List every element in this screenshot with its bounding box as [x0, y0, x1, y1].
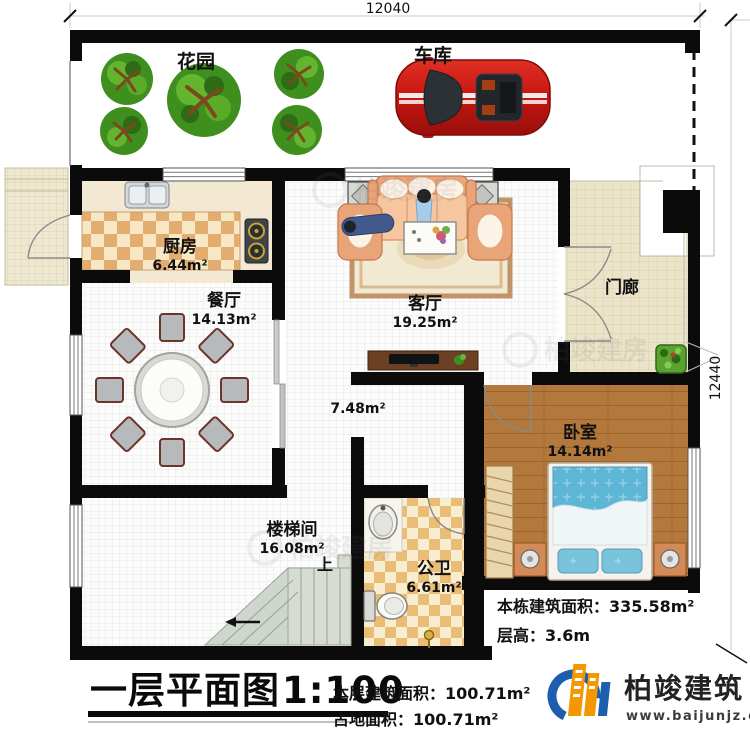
label-stair-up: 上	[317, 555, 333, 574]
window-dining-west	[70, 335, 82, 415]
tree-large	[167, 63, 241, 137]
terrace-floor	[5, 168, 68, 285]
dining-set	[96, 314, 248, 466]
label-kitchen-area: 6.44m²	[152, 258, 207, 274]
label-dining-area: 14.13m²	[191, 312, 256, 328]
porch-plant	[656, 345, 686, 373]
tree	[101, 53, 153, 105]
watermark-text: 柏竣建房	[354, 175, 458, 206]
label-stairwell: 楼梯间	[267, 519, 318, 540]
pillow	[558, 549, 598, 573]
stat-land-area: 占地面积：100.71m²	[333, 710, 498, 729]
label-garage: 车库	[414, 44, 452, 67]
floor-plan-page: 柏竣建房 柏竣建房 柏竣建房 12040 12440 花园 车库 厨房 6.44…	[0, 0, 750, 730]
label-hall-area: 7.48m²	[330, 401, 385, 417]
dimension-top: 12040	[64, 1, 706, 28]
logo-icon	[545, 664, 613, 725]
stat-floor-area: 本层建筑面积：100.71m²	[333, 684, 530, 703]
kitchen-sink	[125, 182, 169, 208]
armchair	[468, 204, 512, 260]
logo-website: www.baijunjz.com	[626, 709, 750, 724]
company-logo: 柏竣建筑 www.baijunjz.com	[545, 664, 750, 725]
dimension-height-label: 12440	[708, 356, 724, 401]
dimension-width-label: 12040	[366, 1, 411, 17]
stat-floor-height: 层高：3.6m	[497, 626, 590, 645]
pillow	[602, 549, 642, 573]
coffee-table	[404, 222, 456, 254]
title-block: 一层平面图1:100 本层建筑面积：100.71m² 占地面积：100.71m²	[88, 669, 530, 729]
window-kitchen-north	[163, 168, 245, 181]
window-stair-west	[70, 505, 82, 587]
nightstand	[654, 543, 686, 576]
label-bathroom-area: 6.61m²	[406, 580, 461, 596]
toilet	[364, 591, 407, 621]
wardrobe	[486, 466, 513, 578]
kitchen-stove	[245, 219, 268, 263]
car	[396, 57, 550, 138]
label-living: 客厅	[407, 293, 442, 314]
tree	[274, 49, 324, 99]
bed	[548, 463, 652, 580]
label-dining: 餐厅	[207, 290, 241, 311]
watermark-text: 柏竣建房	[544, 335, 648, 366]
tv	[389, 354, 439, 364]
tree	[272, 105, 322, 155]
logo-company-name: 柏竣建筑	[624, 672, 744, 705]
label-bedroom-area: 14.14m²	[547, 444, 612, 460]
tv-cabinet	[368, 351, 478, 370]
label-stairwell-area: 16.08m²	[259, 541, 324, 557]
nightstand	[514, 543, 546, 576]
label-bedroom: 卧室	[563, 422, 597, 443]
label-living-area: 19.25m²	[392, 315, 457, 331]
label-garden: 花园	[177, 50, 215, 73]
label-bathroom: 公卫	[417, 559, 451, 579]
tree	[100, 107, 148, 155]
door-sliding-dining	[274, 320, 285, 448]
label-porch: 门廊	[605, 277, 639, 298]
window-bedroom-east	[688, 448, 700, 568]
floor-plan-drawing: 柏竣建房 柏竣建房 柏竣建房 12040 12440 花园 车库 厨房 6.44…	[0, 0, 750, 730]
stat-total-area: 本栋建筑面积：335.58m²	[497, 597, 694, 616]
label-kitchen: 厨房	[163, 236, 197, 257]
